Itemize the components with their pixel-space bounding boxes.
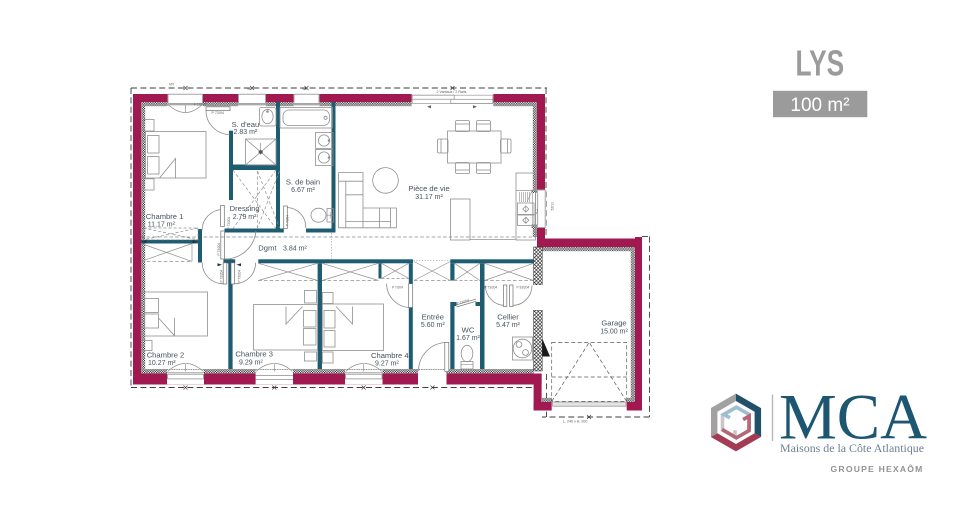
svg-text:Chambre 2: Chambre 2 — [147, 351, 185, 360]
svg-text:Chambre 3: Chambre 3 — [235, 350, 273, 359]
svg-text:Chambre 1: Chambre 1 — [146, 212, 184, 221]
svg-text:1.67 m²: 1.67 m² — [456, 335, 480, 342]
svg-text:100 m²: 100 m² — [790, 95, 849, 116]
svg-text:P 73/204: P 73/204 — [485, 286, 498, 290]
svg-text:P 7/204: P 7/204 — [392, 286, 403, 290]
svg-text:P 73/204: P 73/204 — [238, 270, 242, 283]
svg-text:9.27 m²: 9.27 m² — [375, 361, 399, 368]
svg-text:GROUPE HEXAÔM: GROUPE HEXAÔM — [831, 463, 924, 474]
svg-text:L. 240 x H. 200: L. 240 x H. 200 — [563, 420, 587, 424]
svg-text:2.79 m²: 2.79 m² — [233, 214, 257, 221]
svg-text:Garage: Garage — [601, 319, 626, 328]
svg-text:P 73/04: P 73/04 — [286, 215, 290, 226]
svg-text:P 93/204: P 93/204 — [517, 286, 530, 290]
svg-text:5.47 m²: 5.47 m² — [496, 322, 520, 329]
svg-text:3.84 m²: 3.84 m² — [283, 246, 307, 253]
svg-text:15.00 m²: 15.00 m² — [600, 329, 628, 336]
svg-text:Entrée: Entrée — [422, 313, 444, 322]
svg-text:52/10: 52/10 — [551, 202, 555, 211]
svg-text:P 73/204: P 73/204 — [227, 217, 231, 230]
svg-text:10.27 m²: 10.27 m² — [148, 360, 176, 367]
svg-text:LYS: LYS — [796, 42, 845, 83]
svg-text:9.29 m²: 9.29 m² — [239, 360, 263, 367]
svg-text:F 120/95: F 120/95 — [194, 103, 207, 107]
svg-text:31.17 m²: 31.17 m² — [415, 194, 443, 201]
svg-text:6.67 m²: 6.67 m² — [291, 187, 315, 194]
svg-text:5.60 m²: 5.60 m² — [421, 322, 445, 329]
svg-text:P 73/204: P 73/204 — [217, 243, 221, 256]
svg-text:S. de bain: S. de bain — [286, 178, 320, 187]
svg-text:2 Vantaux / 2 Rails: 2 Vantaux / 2 Rails — [437, 90, 467, 94]
svg-text:Pièce de vie: Pièce de vie — [408, 184, 449, 193]
svg-text:Dgmt: Dgmt — [258, 244, 277, 253]
svg-text:VR: VR — [169, 83, 174, 87]
svg-text:2.83 m²: 2.83 m² — [234, 129, 258, 136]
svg-text:WC: WC — [462, 326, 475, 335]
svg-text:11.17 m²: 11.17 m² — [148, 222, 176, 229]
svg-text:P 73/204: P 73/204 — [219, 270, 223, 283]
svg-text:P 73/04: P 73/04 — [212, 111, 224, 115]
svg-text:Cellier: Cellier — [497, 313, 519, 322]
svg-text:Maisons de la Côte Atlantique: Maisons de la Côte Atlantique — [780, 441, 924, 455]
svg-text:S. d'eau: S. d'eau — [232, 120, 260, 129]
svg-text:Dressing: Dressing — [230, 204, 260, 213]
svg-text:Chambre 4: Chambre 4 — [371, 351, 409, 360]
